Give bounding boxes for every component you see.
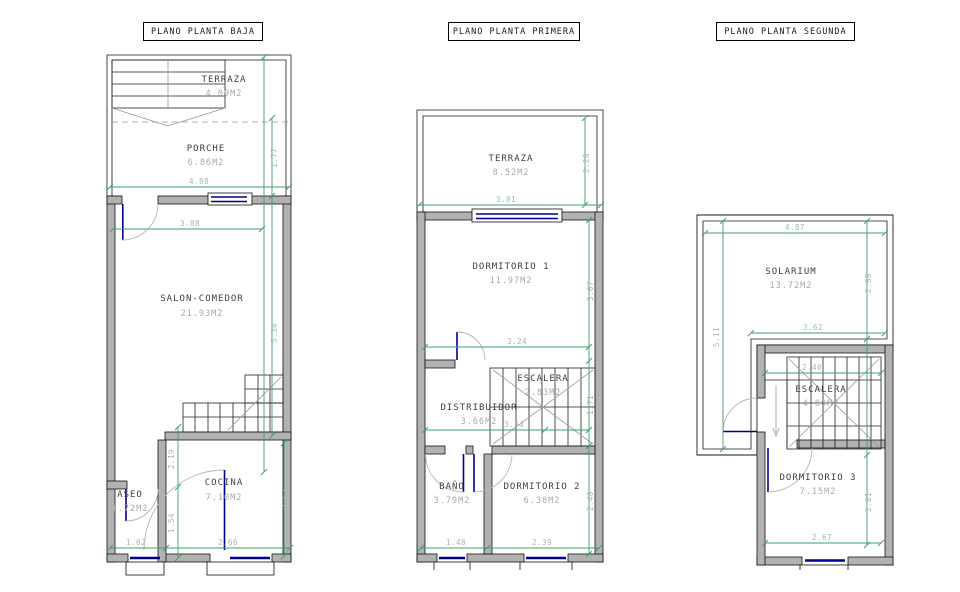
room-cocina-area: 7.10M2 — [206, 493, 243, 503]
title-planta-segunda: PLANO PLANTA SEGUNDA — [716, 22, 855, 41]
dim-escalera-width: 2.40 — [802, 363, 822, 372]
dormitorio2-window — [520, 558, 572, 570]
dim-solarium-inner-width: 3.62 — [803, 323, 823, 332]
title-planta-segunda-label: PLANO PLANTA SEGUNDA — [724, 27, 846, 37]
dim-salon-depth: 5.38 — [270, 323, 279, 343]
dim-solarium-depth-left: 5.11 — [712, 327, 721, 347]
title-planta-primera: PLANO PLANTA PRIMERA — [448, 22, 580, 41]
dim-dorm2-depth: 2.40 — [586, 491, 595, 511]
dim-terraza-depth: 2.28 — [582, 153, 591, 173]
interior-stairs — [183, 375, 283, 432]
room-porche-name: PORCHE — [187, 144, 226, 154]
floor-plan-planta-primera: 3.81 2.28 3.24 3.34 1.48 2.39 3.07 1.71 … — [410, 105, 610, 570]
room-dormitorio1-area: 11.97M2 — [490, 276, 533, 286]
room-dormitorio2-area: 6.38M2 — [524, 496, 561, 506]
title-planta-baja-label: PLANO PLANTA BAJA — [151, 27, 255, 37]
dim-dorm1-depth: 3.07 — [586, 281, 595, 301]
room-terraza-primera-name: TERRAZA — [489, 154, 534, 164]
salon-window — [208, 193, 252, 205]
dim-terraza-width: 3.81 — [496, 195, 516, 204]
dim-solarium-depth-right: 2.88 — [864, 273, 873, 293]
room-solarium-name: SOLARIUM — [765, 267, 816, 277]
room-salon-name: SALON-COMEDOR — [160, 294, 243, 304]
room-escalera-primera-area: 2.83M2 — [525, 388, 562, 398]
room-escalera-segunda-area: 4.80M2 — [803, 399, 840, 409]
floor-plans-sheet: PLANO PLANTA BAJA PLANO PLANTA PRIMERA P… — [0, 0, 960, 592]
dim-solarium-width: 4.87 — [785, 223, 805, 232]
room-porche-area: 6.86M2 — [188, 158, 225, 168]
dim-aseo-depth: 1.54 — [167, 513, 176, 533]
room-escalera-primera-name: ESCALERA — [517, 374, 568, 384]
room-dormitorio3-name: DORMITORIO 3 — [779, 473, 856, 483]
dormitorio1-window — [472, 209, 562, 222]
dim-porch-width: 4.88 — [189, 177, 209, 186]
interior-walls — [425, 360, 595, 554]
solarium-outline — [697, 215, 893, 455]
porch-terrace-outline — [107, 55, 291, 196]
dim-dorm2-width: 2.39 — [532, 538, 552, 547]
dim-cocina-depth: 2.67 — [281, 489, 290, 509]
room-terraza-baja-name: TERRAZA — [202, 75, 247, 85]
title-planta-baja: PLANO PLANTA BAJA — [143, 22, 263, 41]
floor-plan-planta-segunda: 4.87 3.62 5.11 2.88 2.40 2.67 2.81 SOLAR… — [690, 210, 900, 570]
dim-bano-width: 1.48 — [446, 538, 466, 547]
dim-salon-width: 3.88 — [180, 219, 200, 228]
dimension-lines — [107, 54, 293, 561]
dim-aseo-width: 1.02 — [126, 538, 146, 547]
room-distribuidor-name: DISTRIBUIDOR — [440, 403, 517, 413]
cocina-window — [207, 558, 274, 575]
entry-door — [122, 204, 158, 240]
room-cocina-name: COCINA — [205, 478, 244, 488]
dormitorio3-window — [800, 561, 848, 571]
floor-plan-planta-baja: 4.88 3.88 1.02 2.66 1.77 5.38 2.19 1.54 … — [100, 50, 300, 580]
room-aseo-area: 1.72M2 — [112, 504, 149, 514]
block-walls — [757, 345, 893, 565]
dim-dorm3-depth: 2.81 — [864, 492, 873, 512]
dim-hall-depth: 2.19 — [167, 449, 176, 469]
dim-escalera-depth: 1.71 — [586, 395, 595, 415]
room-escalera-segunda-name: ESCALERA — [795, 385, 846, 395]
dim-dorm1-width: 3.24 — [507, 337, 527, 346]
bano-window — [434, 558, 470, 570]
dormitorio1-door — [457, 332, 485, 360]
dim-cocina-width: 2.66 — [218, 538, 238, 547]
room-dormitorio1-name: DORMITORIO 1 — [472, 262, 549, 272]
room-bano-area: 3.79M2 — [434, 496, 471, 506]
room-solarium-area: 13.72M2 — [770, 281, 813, 291]
dormitorio3-door — [768, 448, 812, 492]
room-dormitorio2-name: DORMITORIO 2 — [503, 482, 580, 492]
room-distribuidor-area: 3.66M2 — [461, 417, 498, 427]
room-terraza-baja-area: 4.09M2 — [206, 89, 243, 99]
room-salon-area: 21.93M2 — [181, 309, 224, 319]
dim-porch-depth: 1.77 — [270, 148, 279, 168]
room-dormitorio3-area: 7.15M2 — [800, 487, 837, 497]
dim-dorm3-width: 2.67 — [812, 533, 832, 542]
dim-distribuidor-width: 3.34 — [504, 420, 524, 429]
room-aseo-name: ASEO — [117, 490, 143, 500]
room-terraza-primera-area: 8.52M2 — [493, 168, 530, 178]
title-planta-primera-label: PLANO PLANTA PRIMERA — [453, 27, 575, 37]
room-bano-name: BAÑO — [439, 481, 465, 492]
